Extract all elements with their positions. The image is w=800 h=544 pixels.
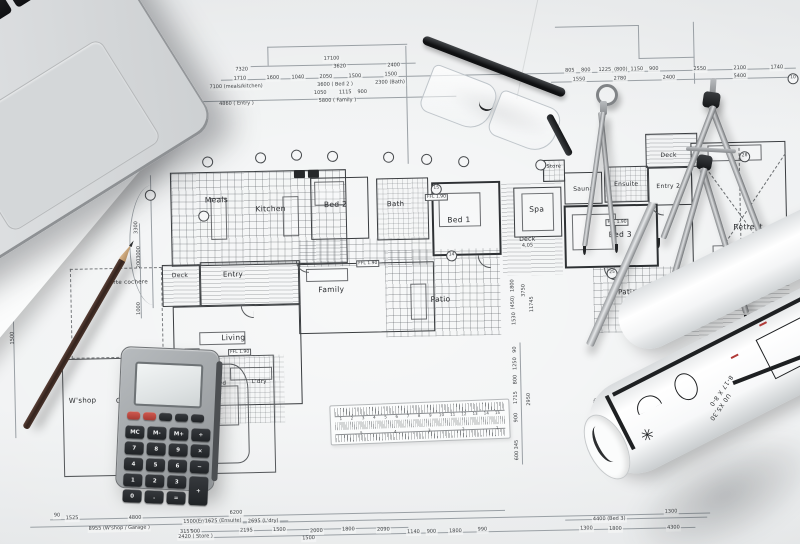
room-label: Bath: [387, 200, 405, 208]
dimension-text: 6200: [229, 511, 244, 517]
dimension-text: 1740: [769, 65, 784, 71]
construction-line: [267, 47, 268, 66]
construction-line: [267, 44, 407, 48]
plan-area-bath: [376, 177, 429, 240]
kitchen-appliance: [294, 170, 305, 178]
ruler-number: 3: [362, 415, 365, 420]
furniture-outline: [282, 196, 299, 236]
dimension-text: 4,05: [521, 243, 534, 249]
dimension-text: 1500: [383, 72, 398, 78]
photo-scene: MealsKitchenBed 2BathDeckEntryFamilyLivi…: [0, 0, 800, 544]
ffl-level-tag: FFL 1.90: [356, 260, 379, 267]
grid-bubble: 10: [787, 73, 798, 84]
dimension-text: 1500: [301, 536, 316, 542]
dimension-text: 1040: [290, 75, 305, 81]
grid-bubble: [421, 154, 432, 165]
grid-bubble: [255, 152, 266, 163]
dimension-text: 1710: [233, 76, 248, 82]
divider-tip-left: [583, 246, 586, 255]
ruler-number: 10: [439, 412, 444, 417]
calculator-key-5: 5: [146, 458, 166, 472]
calculator-key-=: =: [166, 491, 186, 505]
room-label: Bed 2: [324, 200, 347, 209]
dimension-text: 1500: [272, 528, 287, 534]
dimension-text: 1800: [341, 527, 356, 533]
dimension-text: 2780: [613, 76, 628, 82]
roll-drawing-toilet: [670, 369, 702, 404]
dimension-text: 1530: [512, 311, 518, 326]
tree-symbol-icon: ✳: [637, 423, 658, 446]
dimension-text: 1115: [338, 90, 353, 96]
calculator-display: [134, 362, 204, 409]
dimension-text: 990: [477, 527, 489, 533]
room-label: Meals: [205, 195, 228, 204]
calculator-key-1: 1: [123, 473, 143, 487]
grid-bubble: [458, 156, 469, 167]
dimension-text: 8955 (W'shop / Garage ): [88, 526, 151, 533]
dimension-text: 4800: [128, 516, 143, 522]
dimension-text: 3600 ( Bed 2 ): [316, 82, 354, 88]
dimension-text: 2300 (Bath): [374, 80, 406, 86]
room-label: Ensuite: [614, 180, 638, 188]
dimension-text: 900: [356, 90, 368, 96]
calculator-top-key: [143, 412, 156, 421]
dimension-text: 5800 ( Family ): [318, 98, 358, 104]
calculator-top-key: [127, 411, 140, 420]
calculator-key-3: 3: [167, 475, 187, 489]
dimension-text: (800): [613, 67, 629, 73]
dimension-text: 1715: [514, 390, 520, 405]
furniture-outline: [306, 268, 348, 282]
calculator-key-0: 0: [122, 489, 142, 503]
dimension-text: 600: [515, 450, 521, 462]
ruler-number: 14: [484, 410, 489, 415]
construction-line: [180, 527, 408, 533]
ruler-number: 11: [450, 412, 455, 417]
compass1-tip-left: [657, 238, 660, 248]
room-label: Family: [318, 285, 344, 295]
dimension-text: 3300: [134, 220, 140, 235]
dimension-text: (450): [511, 295, 517, 311]
calculator-key-×: ×: [190, 444, 210, 458]
dimension-text: 1140: [406, 530, 421, 536]
construction-line: [693, 22, 695, 84]
dimension-text: 1550: [572, 77, 587, 83]
room-label: Bed 1: [447, 215, 470, 224]
dimension-text: 1800: [448, 529, 463, 535]
ruler-number: 15: [495, 410, 500, 415]
calculator: MCM-M+÷789×456−1230.=+: [115, 346, 220, 492]
room-label: Spa: [529, 204, 544, 213]
construction-line: [555, 25, 639, 28]
dimension-text: 800: [513, 374, 519, 386]
dimension-text: 2550: [692, 67, 707, 73]
calculator-top-key: [175, 413, 188, 422]
calculator-key-6: 6: [168, 459, 188, 473]
room-label: Entry: [223, 270, 243, 278]
dimension-text: 90: [53, 513, 61, 519]
roll-drawing-sink: [633, 391, 663, 415]
ruler-number: 3: [428, 428, 431, 433]
dimension-text: 2050: [318, 75, 333, 81]
dimension-text: 90: [513, 345, 519, 353]
dimension-text: 1225: [597, 68, 612, 74]
ruler-number: 9: [429, 413, 432, 418]
room-label: Store: [546, 164, 561, 170]
ruler-number: 5: [384, 414, 387, 419]
scale-ruler: 123456789101112131415 54321: [329, 399, 510, 446]
calculator-key-2: 2: [145, 474, 165, 488]
ruler-number: 13: [472, 411, 477, 416]
dimension-text: 800: [580, 68, 592, 74]
dimension-text: 3620: [332, 64, 347, 70]
dimension-text: 4860 ( Entry ): [218, 101, 255, 107]
room-label: W'shop: [69, 396, 97, 405]
calculator-key-M-: M-: [147, 426, 167, 440]
dimension-text: 3750: [522, 283, 528, 298]
grid-bubble: [291, 150, 302, 161]
dimension-text: 17100: [323, 56, 341, 62]
calculator-key-4: 4: [124, 457, 144, 471]
dimension-text: 1250: [513, 356, 519, 371]
dimension-text: 2400: [662, 75, 677, 81]
dimension-text: 805: [564, 69, 576, 75]
calculator-key-÷: ÷: [191, 428, 211, 442]
calculator-key-9: 9: [168, 443, 188, 457]
calculator-key-7: 7: [124, 441, 144, 455]
room-label: Living: [221, 333, 245, 343]
ruler-number: 7: [407, 413, 410, 418]
plan-area-entry: [200, 260, 301, 306]
dimension-text: 1000: [137, 301, 143, 316]
dimension-text: 2195: [239, 528, 254, 534]
dimension-text: 2090: [376, 528, 391, 534]
dimension-text: 2950: [527, 392, 533, 407]
ruler-number: 4: [373, 415, 376, 420]
ffl-level-tag: FFL 1.90: [228, 349, 251, 356]
furniture-outline: [410, 283, 427, 319]
dimension-text: 2420 ( Store ): [177, 534, 214, 540]
dimension-text: 2100: [732, 66, 747, 72]
dimension-text: 7100 (meals/kitchen): [208, 84, 263, 91]
grid-bubble: [383, 152, 394, 163]
dimension-text: 1600: [265, 76, 280, 82]
room-label: L'dry: [252, 379, 267, 385]
room-label: Kitchen: [255, 204, 285, 214]
dimension-text: 2400: [386, 63, 401, 69]
ruler-number: 1: [339, 416, 342, 421]
ruler-number: 12: [461, 411, 466, 416]
divider-tip-right: [615, 244, 618, 253]
dimension-text: 345: [515, 439, 521, 451]
roll-red-dimension-mark: [731, 354, 739, 359]
ruler-number: 2: [351, 416, 354, 421]
ruler-number: 2: [462, 426, 465, 431]
room-label: Deck: [660, 152, 676, 159]
dimension-text: 5400: [733, 74, 748, 80]
construction-line: [638, 25, 640, 59]
dimension-text: 900: [648, 67, 660, 73]
dimension-text: 900: [426, 530, 438, 536]
keyboard-key: [0, 0, 13, 32]
dimension-text: 1050: [313, 91, 328, 97]
calculator-key-−: −: [190, 460, 210, 474]
room-label: Deck: [172, 272, 188, 279]
dimension-text: 1525: [65, 516, 80, 522]
kitchen-appliance: [308, 170, 319, 178]
room-label: Entry 2: [656, 183, 680, 190]
calculator-key-.: .: [144, 490, 164, 504]
roll-end-curl: [587, 422, 622, 466]
grid-bubble: [202, 156, 213, 167]
ruler-number: 6: [395, 414, 398, 419]
calculator-key-plus: +: [188, 476, 208, 506]
ruler-number: 1: [496, 425, 499, 430]
room-label: Patio: [431, 294, 451, 303]
dimension-text: 1500: [347, 74, 362, 80]
dimension-text: 7320: [234, 67, 249, 73]
dimension-text: 2000: [309, 529, 324, 535]
ruler-number: 4: [394, 429, 397, 434]
dimension-text: 11745: [530, 295, 536, 313]
ruler-number: 5: [360, 430, 363, 435]
dimension-text: 900: [514, 412, 520, 424]
calculator-key-M+: M+: [169, 427, 189, 441]
grid-bubble: [327, 151, 338, 162]
dimension-text: 1625 (Ensuite): [204, 519, 243, 525]
calculator-key-MC: MC: [125, 425, 145, 439]
calculator-top-key: [159, 413, 172, 422]
dimension-text: 200: [137, 258, 143, 270]
ruler-number: 8: [418, 413, 421, 418]
dimension-text: 1500: [10, 331, 16, 346]
dimension-text: 2695 (L'dry): [247, 519, 280, 525]
dimension-text: 1800: [510, 278, 516, 293]
calculator-top-key: [191, 414, 204, 423]
construction-line: [639, 57, 695, 59]
calculator-key-8: 8: [146, 442, 166, 456]
dimension-text: 1150: [629, 67, 644, 73]
